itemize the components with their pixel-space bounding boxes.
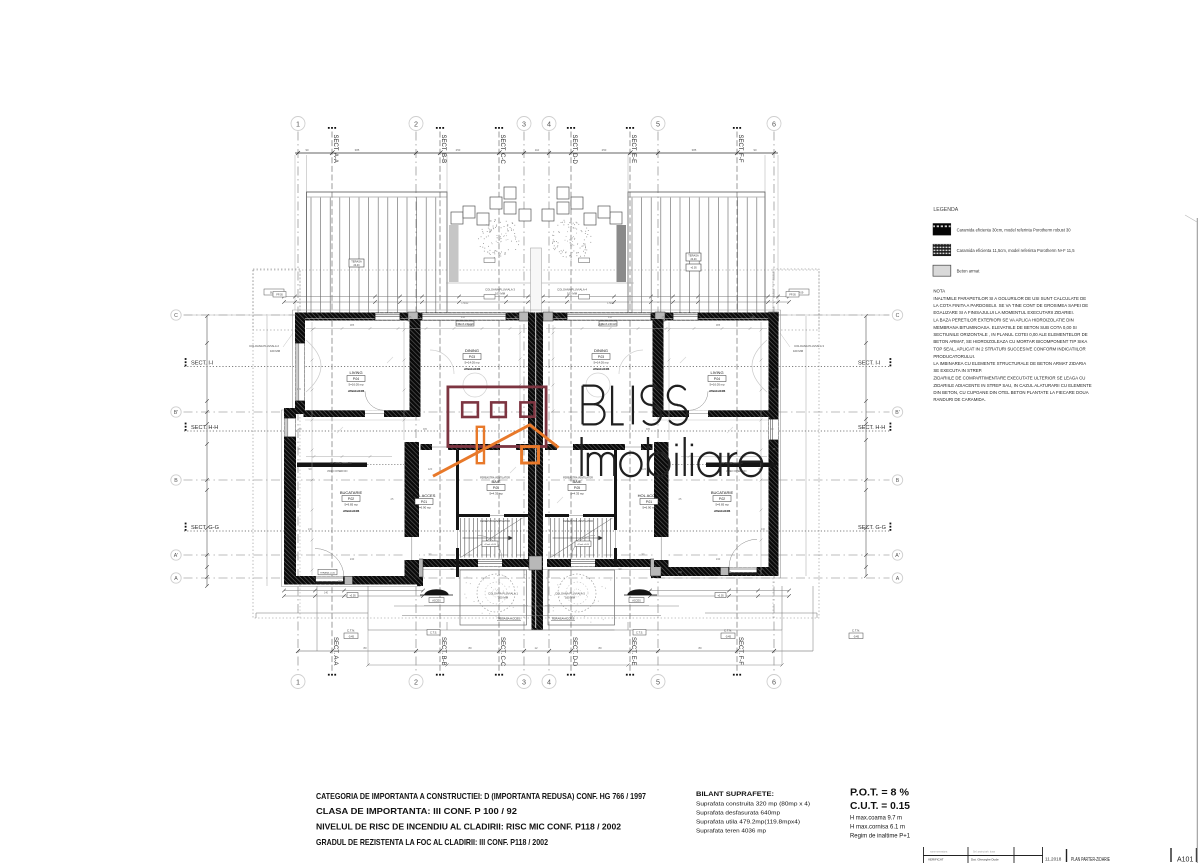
svg-text:C.T.S.: C.T.S. <box>636 631 643 635</box>
svg-text:Beton armat: Beton armat <box>957 269 981 274</box>
svg-text:1.50x2: 1.50x2 <box>607 302 615 305</box>
svg-text:120: 120 <box>297 388 302 391</box>
svg-text:SECT. G-G: SECT. G-G <box>191 525 219 531</box>
svg-text:P.04: P.04 <box>714 377 720 381</box>
svg-text:A: A <box>896 576 900 582</box>
svg-text:C: C <box>174 313 178 319</box>
svg-text:C.T.N.: C.T.N. <box>724 629 733 633</box>
svg-text:100 MM: 100 MM <box>498 596 509 600</box>
svg-text:S=16.05 mp: S=16.05 mp <box>348 383 364 387</box>
svg-text:SECT. E-E: SECT. E-E <box>630 637 636 666</box>
svg-text:S=4.35 mp: S=4.35 mp <box>570 492 584 496</box>
svg-text:Suprafata utila 479.2mp(119.8m: Suprafata utila 479.2mp(119.8mpx4) <box>696 820 800 826</box>
svg-text:S=6.90 mp: S=6.90 mp <box>417 506 431 510</box>
svg-text:SECT. E-E: SECT. E-E <box>630 135 636 164</box>
svg-text:LA BAZA PERETILOR EXTERIORI SE: LA BAZA PERETILOR EXTERIORI SE VA APLICA… <box>933 318 1073 323</box>
svg-text:SECT. B-B: SECT. B-B <box>440 637 446 666</box>
svg-text:SECT. H-H: SECT. H-H <box>191 425 218 431</box>
svg-text:250: 250 <box>468 323 473 327</box>
svg-text:EGALIZARE SI A FINISAJULUI LA: EGALIZARE SI A FINISAJULUI LA MOMENTUL E… <box>933 310 1073 315</box>
svg-text:4: 4 <box>547 119 551 128</box>
svg-text:SECT. C-C: SECT. C-C <box>499 637 505 667</box>
svg-text:Caramida eficienta 11,5cm, mod: Caramida eficienta 11,5cm, model referin… <box>957 248 1076 253</box>
svg-text:FEREASTRA VENTILATOR: FEREASTRA VENTILATOR <box>480 520 510 523</box>
svg-text:SECT. C-C: SECT. C-C <box>499 135 505 165</box>
svg-text:nume semnatura: nume semnatura <box>930 851 948 854</box>
svg-text:120: 120 <box>428 467 433 471</box>
svg-text:240: 240 <box>350 557 355 561</box>
svg-text:SECT. B-B: SECT. B-B <box>440 135 446 164</box>
svg-text:FEREASTRA VENTILATOR: FEREASTRA VENTILATOR <box>480 477 510 480</box>
svg-text:SECT. G-G: SECT. G-G <box>858 525 886 531</box>
svg-text:P.03: P.03 <box>598 355 604 359</box>
svg-text:SECT. I-I: SECT. I-I <box>191 361 214 367</box>
svg-text:80: 80 <box>363 646 367 650</box>
svg-text:P.02: P.02 <box>719 497 725 501</box>
svg-text:A': A' <box>174 553 178 559</box>
svg-text:SECT. D-D: SECT. D-D <box>571 637 577 667</box>
svg-text:CLASA DE IMPORTANTA: III CONF.: CLASA DE IMPORTANTA: III CONF. P 100 / 9… <box>316 807 518 816</box>
svg-text:160: 160 <box>338 580 343 583</box>
svg-text:A': A' <box>895 553 899 559</box>
svg-text:NIVELUL DE RISC DE INCENDIU AL: NIVELUL DE RISC DE INCENDIU AL CLADIRII:… <box>316 823 621 832</box>
svg-text:SECT. F-F: SECT. F-F <box>737 135 743 163</box>
svg-text:SECTIUNILE ORIZONTALE , IN PLA: SECTIUNILE ORIZONTALE , IN PLANUL COTEI … <box>933 332 1087 337</box>
svg-text:BAIE: BAIE <box>572 479 581 484</box>
svg-text:LIVING: LIVING <box>710 370 723 375</box>
svg-text:SECT. D-D: SECT. D-D <box>571 135 577 165</box>
svg-text:P.O.T. = 8 %: P.O.T. = 8 % <box>850 788 909 799</box>
svg-text:TERASA: TERASA <box>351 260 362 264</box>
svg-text:P.05: P.05 <box>493 486 499 490</box>
svg-text:6: 6 <box>772 119 776 128</box>
svg-text:385: 385 <box>692 148 697 152</box>
svg-text:C.U.T. = 0.15: C.U.T. = 0.15 <box>850 801 910 812</box>
svg-text:2: 2 <box>414 119 418 128</box>
svg-text:80: 80 <box>698 646 702 650</box>
svg-text:90: 90 <box>305 148 309 152</box>
svg-text:4: 4 <box>547 677 551 686</box>
svg-text:3: 3 <box>522 677 526 686</box>
svg-text:COLOANA PLUVIALA 2: COLOANA PLUVIALA 2 <box>249 344 279 348</box>
svg-text:TERASA +0.05: TERASA +0.05 <box>320 572 336 575</box>
svg-text:100 MM: 100 MM <box>270 349 281 353</box>
svg-text:C: C <box>896 313 900 319</box>
svg-text:P.03: P.03 <box>469 355 475 359</box>
svg-text:P.02: P.02 <box>348 497 354 501</box>
svg-text:SECT. A-A: SECT. A-A <box>332 135 338 163</box>
svg-text:140: 140 <box>324 592 329 595</box>
svg-text:+0.05: +0.05 <box>349 594 356 597</box>
svg-text:S=6.90 mp: S=6.90 mp <box>642 506 656 510</box>
svg-text:DINING: DINING <box>594 348 608 353</box>
svg-text:+0.05: +0.05 <box>717 594 724 597</box>
svg-text:ZIDARIILE ADIACENTE IN STREP S: ZIDARIILE ADIACENTE IN STREP SAU, IN CAZ… <box>933 383 1091 388</box>
svg-text:UL TRASE pana DU: UL TRASE pana DU <box>330 462 352 465</box>
svg-text:120: 120 <box>642 467 647 471</box>
svg-text:P.01: P.01 <box>421 500 427 504</box>
svg-text:TOP SEAL, APLICAT IN 2 STRATUR: TOP SEAL, APLICAT IN 2 STRATURI SUCCESIV… <box>933 347 1085 352</box>
svg-text:+Pard.+0.05: +Pard.+0.05 <box>577 543 590 546</box>
svg-text:100 MM: 100 MM <box>495 292 506 296</box>
svg-text:MEMBRANA BITUMINOASA. ELEVATII: MEMBRANA BITUMINOASA. ELEVATIILE DE BETO… <box>933 325 1076 330</box>
svg-text:Suprafata construita 320 mp (8: Suprafata construita 320 mp (80mp x 4) <box>696 802 810 808</box>
svg-text:+Pard.+0.05: +Pard.+0.05 <box>484 543 497 546</box>
svg-text:GRADUL DE REZISTENTA LA FOC AL: GRADUL DE REZISTENTA LA FOC AL CLADIRII:… <box>316 838 548 847</box>
svg-text:C.T.S.: C.T.S. <box>430 631 437 635</box>
svg-text:BILANT SUPRAFETE:: BILANT SUPRAFETE: <box>696 792 774 798</box>
svg-text:ACCES: ACCES <box>432 599 441 602</box>
svg-text:250: 250 <box>598 323 603 327</box>
svg-text:240: 240 <box>608 316 613 319</box>
svg-text:VIDEO INTERFON: VIDEO INTERFON <box>327 470 348 473</box>
svg-text:12: 12 <box>534 646 538 650</box>
svg-text:Suprafata teren 4036 mp: Suprafata teren 4036 mp <box>696 829 766 835</box>
svg-text:B': B' <box>174 410 178 416</box>
svg-text:DINING: DINING <box>465 348 479 353</box>
svg-text:80: 80 <box>468 646 472 650</box>
svg-text:C.T.N.: C.T.N. <box>347 629 356 633</box>
svg-text:240: 240 <box>308 528 313 531</box>
svg-text:TERASA ACCES: TERASA ACCES <box>498 617 521 621</box>
svg-text:H max.coama 9.7 m: H max.coama 9.7 m <box>850 816 902 822</box>
svg-text:100 MM: 100 MM <box>793 349 804 353</box>
svg-text:HOL ACCES: HOL ACCES <box>413 493 436 498</box>
svg-text:SECT. I-I: SECT. I-I <box>858 361 881 367</box>
svg-text:Caramida eficienta 30cm, model: Caramida eficienta 30cm, model referinta… <box>957 228 1072 233</box>
svg-text:LEGENDA: LEGENDA <box>933 207 958 213</box>
svg-text:11.2018: 11.2018 <box>1045 857 1062 862</box>
svg-text:120: 120 <box>772 388 777 391</box>
svg-text:S=4.35 mp: S=4.35 mp <box>489 492 503 496</box>
svg-text:VERIFICAT: VERIFICAT <box>928 858 944 862</box>
svg-text:S=14.05 mp: S=14.05 mp <box>593 361 609 365</box>
svg-text:DIN BETON, CU CUPOANE DIN OTEL: DIN BETON, CU CUPOANE DIN OTEL BETON PLA… <box>933 390 1088 395</box>
svg-text:6: 6 <box>772 677 776 686</box>
svg-text:80: 80 <box>598 646 602 650</box>
svg-text:TERASA ACCES: TERASA ACCES <box>552 617 575 621</box>
svg-text:240: 240 <box>461 316 466 319</box>
svg-text:PP.05: PP.05 <box>276 294 283 297</box>
svg-text:C.T.N.: C.T.N. <box>852 629 861 633</box>
svg-text:BETON ARMAT, SE HIDROIZOLEAZA: BETON ARMAT, SE HIDROIZOLEAZA CU MORTAR … <box>933 339 1087 344</box>
svg-text:BUCATARIE: BUCATARIE <box>340 490 363 495</box>
svg-text:100 MM: 100 MM <box>565 596 576 600</box>
svg-text:B: B <box>896 478 900 484</box>
svg-text:24.43: 24.43 <box>691 258 698 261</box>
svg-text:S=14.05 mp: S=14.05 mp <box>464 361 480 365</box>
svg-text:5: 5 <box>656 677 660 686</box>
svg-text:ACCES: ACCES <box>632 599 641 602</box>
svg-text:A: A <box>174 576 178 582</box>
svg-text:Sef. proiect arh. buna: Sef. proiect arh. buna <box>973 851 996 854</box>
svg-text:HOL ACCES: HOL ACCES <box>638 493 661 498</box>
svg-text:160: 160 <box>678 571 683 574</box>
svg-text:-0.45: -0.45 <box>725 634 732 638</box>
svg-text:TERASA: TERASA <box>688 254 699 258</box>
svg-text:CATEGORIA DE IMPORTANTA A CO: CATEGORIA DE IMPORTANTA A CONSTRUCTIEI: … <box>316 792 646 801</box>
svg-text:2: 2 <box>414 677 418 686</box>
svg-text:1: 1 <box>296 119 300 128</box>
svg-text:Suprafata desfasurata 640mp: Suprafata desfasurata 640mp <box>696 811 780 817</box>
svg-text:H max.cornisa 6.1 m: H max.cornisa 6.1 m <box>850 825 905 831</box>
svg-text:-0.45: -0.45 <box>348 634 355 638</box>
svg-text:LIVING: LIVING <box>349 370 362 375</box>
svg-text:SE EXECUTA IN STREP.: SE EXECUTA IN STREP. <box>933 368 982 373</box>
svg-text:240: 240 <box>716 557 721 561</box>
svg-text:B: B <box>174 478 178 484</box>
svg-text:P.01: P.01 <box>646 500 652 504</box>
svg-text:ZIDARIILE DE COMPARTIMENTARE: ZIDARIILE DE COMPARTIMENTARE EXECUTATE U… <box>933 376 1085 381</box>
svg-text:SECT. H-H: SECT. H-H <box>858 425 885 431</box>
svg-text:24.43: 24.43 <box>354 264 361 267</box>
svg-text:BAIE: BAIE <box>491 479 500 484</box>
svg-text:S=9.85 mp: S=9.85 mp <box>344 503 358 507</box>
svg-text:P.05: P.05 <box>574 486 580 490</box>
svg-text:PRODUCATORULUI.: PRODUCATORULUI. <box>933 354 975 359</box>
svg-text:385: 385 <box>350 323 355 327</box>
svg-text:5: 5 <box>656 119 660 128</box>
svg-text:LA COTA FINITA A PARDOSELII. S: LA COTA FINITA A PARDOSELII. SE VA TINE … <box>933 303 1088 308</box>
svg-text:100 MM: 100 MM <box>567 292 578 296</box>
svg-text:1: 1 <box>296 677 300 686</box>
svg-text:1.50x2: 1.50x2 <box>461 302 469 305</box>
svg-text:NOTA: NOTA <box>933 289 945 294</box>
svg-text:385: 385 <box>423 428 428 431</box>
svg-text:P.04: P.04 <box>353 377 359 381</box>
svg-text:-0.45: -0.45 <box>853 634 860 638</box>
svg-text:+0.05: +0.05 <box>690 267 697 270</box>
svg-text:S=16.05 mp: S=16.05 mp <box>709 383 725 387</box>
svg-text:FEREASTRA VENTILATOR: FEREASTRA VENTILATOR <box>563 477 593 480</box>
svg-text:110: 110 <box>535 148 540 152</box>
svg-text:B': B' <box>895 410 899 416</box>
svg-text:COLOANA PLUVIALA 3: COLOANA PLUVIALA 3 <box>794 344 824 348</box>
svg-text:250: 250 <box>602 148 607 152</box>
svg-text:240: 240 <box>761 528 766 531</box>
svg-text:FEREASTRA VENTILATOR: FEREASTRA VENTILATOR <box>563 520 593 523</box>
svg-text:3: 3 <box>522 119 526 128</box>
svg-text:Regim de inaltime P+1: Regim de inaltime P+1 <box>850 834 911 840</box>
svg-text:385: 385 <box>716 323 721 327</box>
svg-text:LA IMBINAREA CU ELEMENTE STRUC: LA IMBINAREA CU ELEMENTE STRUCTURALE DE … <box>933 361 1086 366</box>
svg-text:BUCATARIE: BUCATARIE <box>711 490 734 495</box>
svg-text:250: 250 <box>456 148 461 152</box>
svg-text:A101: A101 <box>1177 857 1193 863</box>
svg-text:385: 385 <box>355 148 360 152</box>
svg-text:PP.05: PP.05 <box>789 294 796 297</box>
svg-text:Dat. Gheorghe Dude: Dat. Gheorghe Dude <box>971 858 999 862</box>
svg-text:385: 385 <box>646 428 651 431</box>
svg-text:PLAN PARTER-ZIDARIE: PLAN PARTER-ZIDARIE <box>1071 857 1110 863</box>
svg-text:90: 90 <box>753 148 757 152</box>
svg-text:RANDURI DE CARAMIDA.: RANDURI DE CARAMIDA. <box>933 397 985 402</box>
svg-text:S=9.85 mp: S=9.85 mp <box>715 503 729 507</box>
svg-text:INALTIMILE PARAPETILOR SI A GO: INALTIMILE PARAPETILOR SI A GOLURILOR DE… <box>933 296 1086 301</box>
